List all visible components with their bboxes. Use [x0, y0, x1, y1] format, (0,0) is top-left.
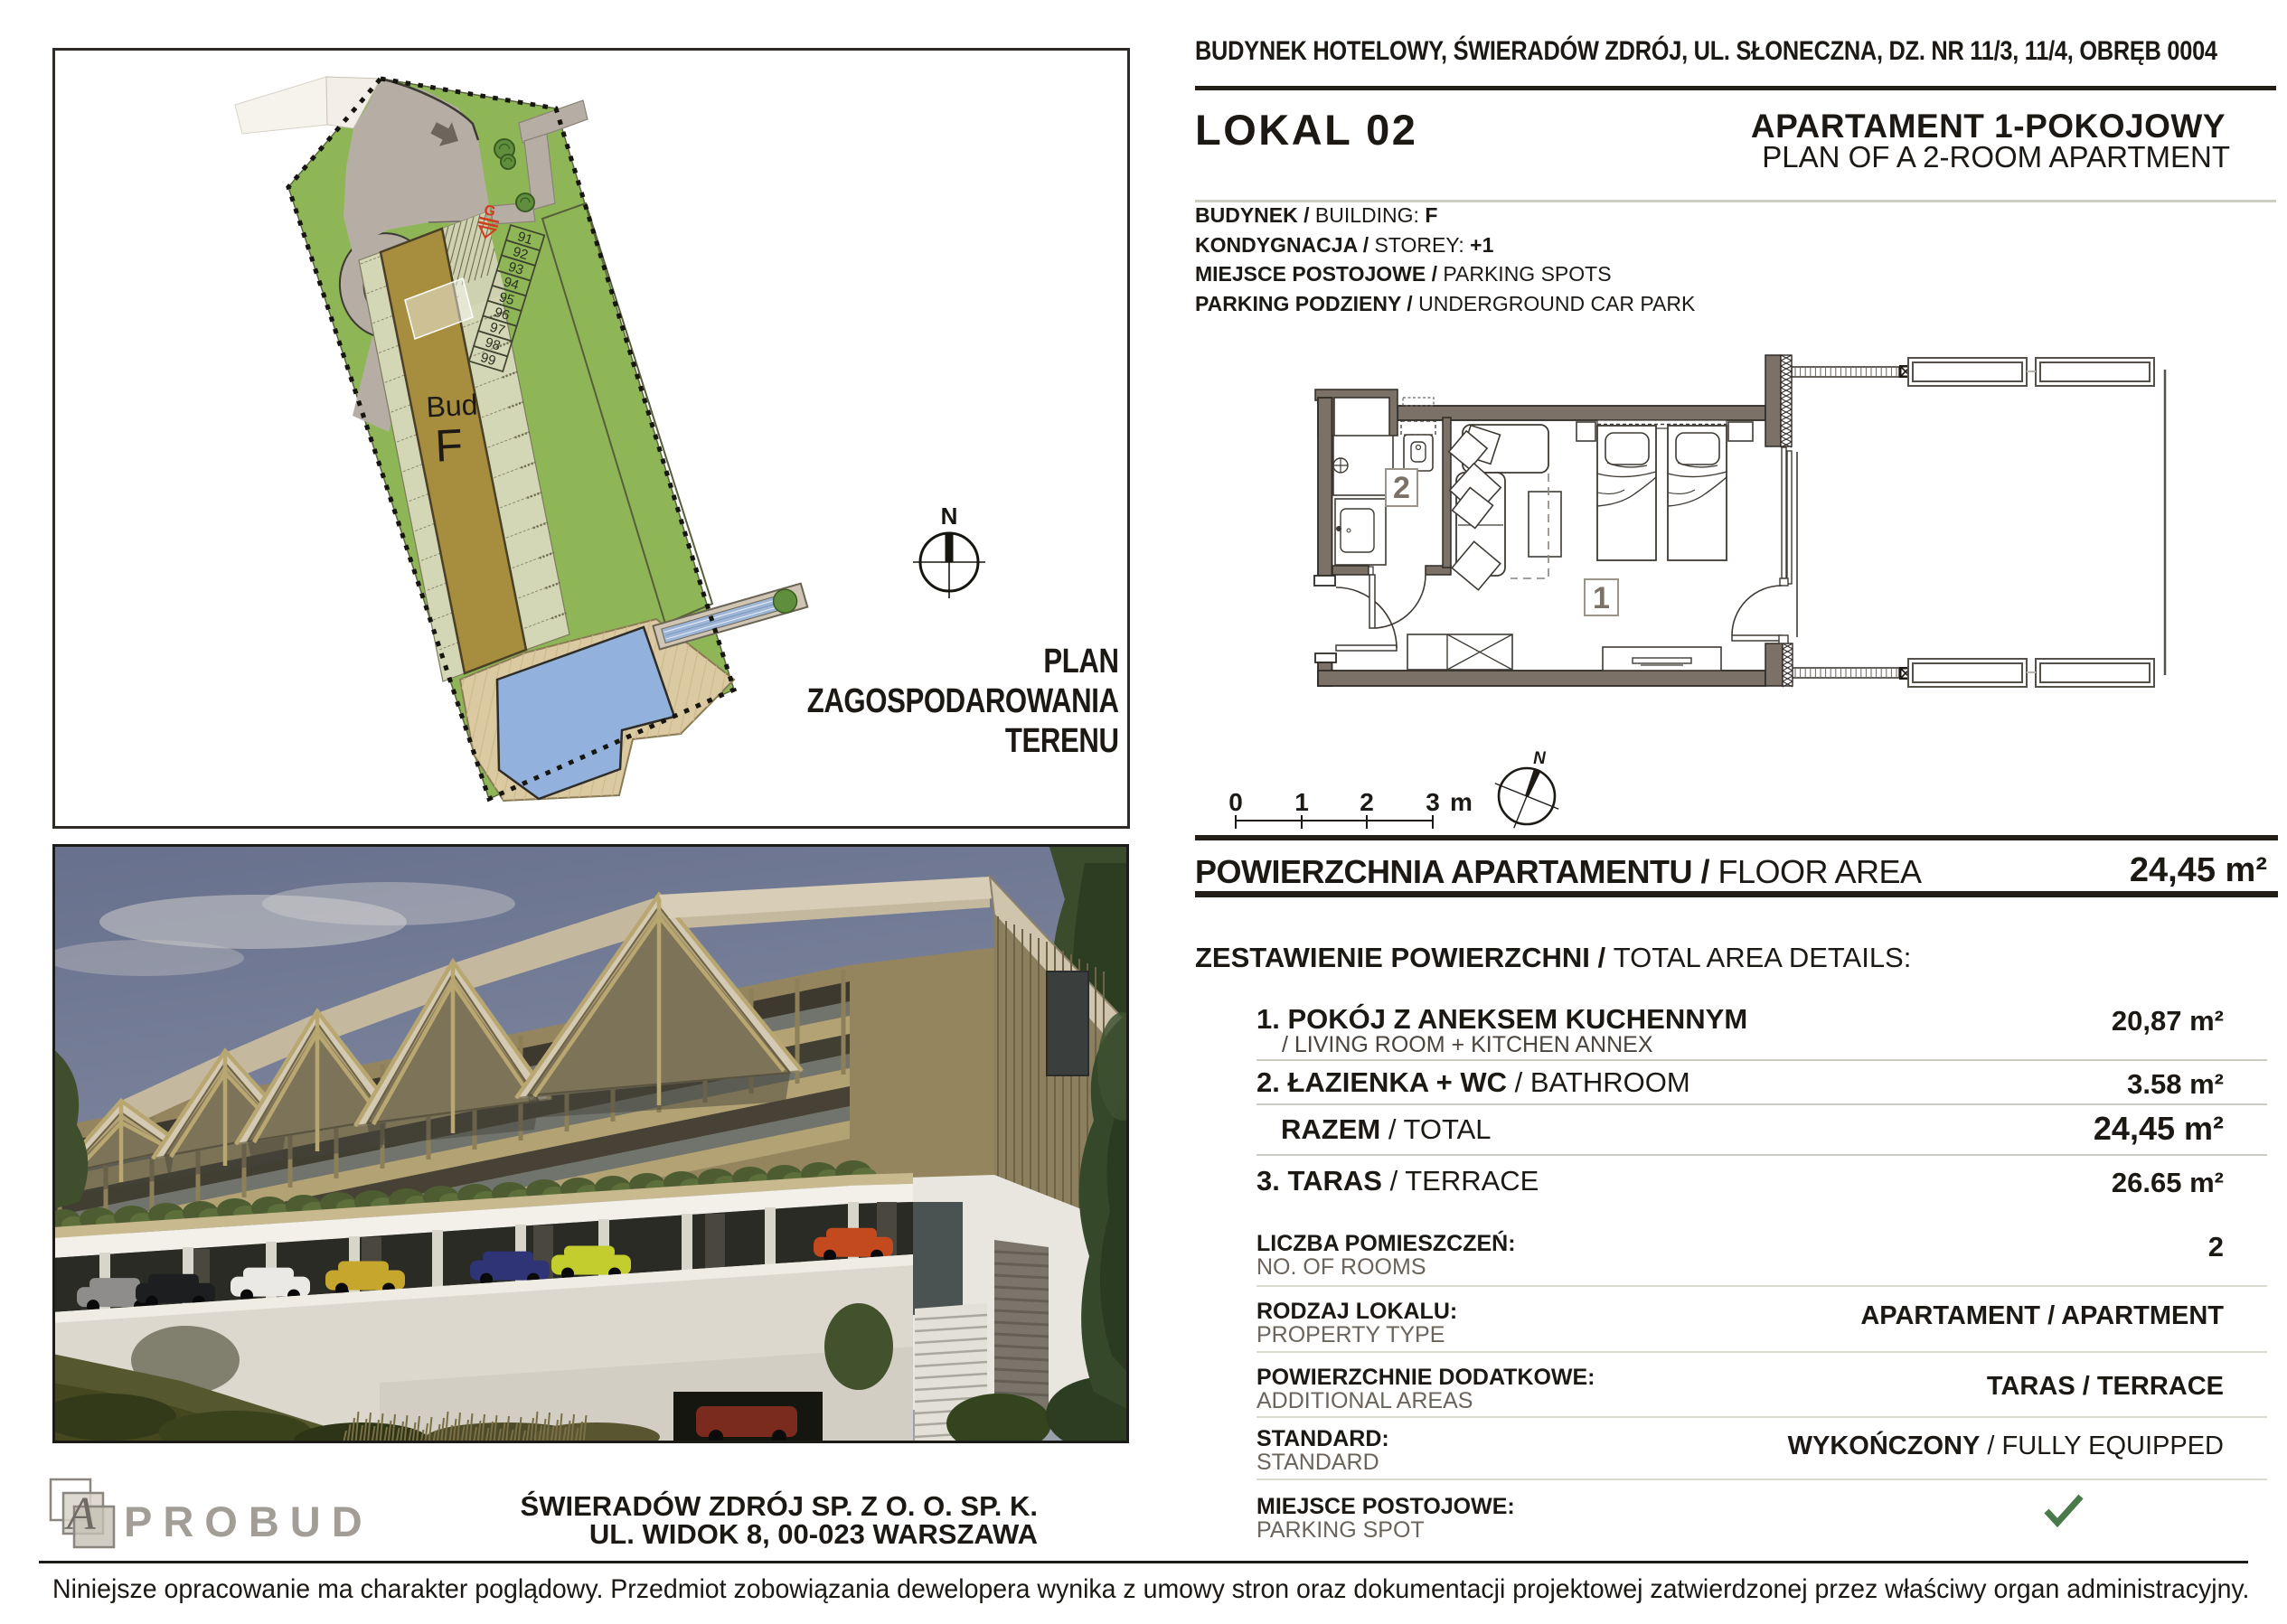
svg-text:A: A — [64, 1488, 96, 1540]
svg-text:1: 1 — [1294, 788, 1309, 816]
svg-text:2: 2 — [1393, 471, 1410, 505]
svg-text:N: N — [1533, 749, 1547, 768]
svg-text:Bud: Bud — [426, 389, 479, 424]
svg-text:3: 3 — [1426, 788, 1440, 816]
svg-text:F: F — [434, 419, 464, 472]
svg-text:m: m — [1450, 788, 1473, 816]
svg-text:N: N — [941, 502, 958, 530]
svg-text:1: 1 — [1593, 581, 1610, 615]
svg-text:2: 2 — [1360, 788, 1374, 816]
svg-text:0: 0 — [1228, 788, 1243, 816]
svg-text:PROBUD: PROBUD — [124, 1497, 373, 1545]
